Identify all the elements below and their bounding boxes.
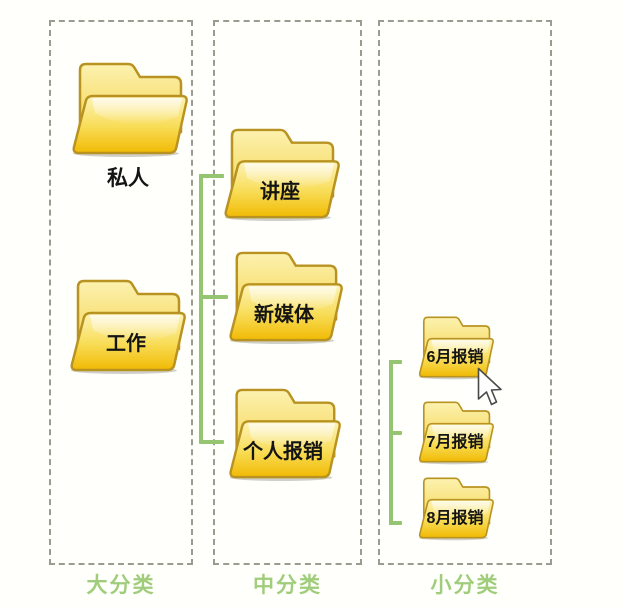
folder-private[interactable]	[68, 62, 188, 158]
connector-bracket-middle	[199, 174, 203, 444]
open-folder-icon	[66, 279, 186, 375]
connector-tick-july	[389, 431, 402, 435]
connector-bracket-small	[389, 360, 393, 525]
folder-august-reimbursement[interactable]: 8月报销	[416, 477, 494, 541]
category-label-large: 大分类	[49, 569, 193, 599]
folder-work[interactable]: 工作	[66, 279, 186, 375]
category-label-small: 小分类	[378, 569, 552, 599]
folder-personal-reimbursement[interactable]: 个人报销	[225, 388, 341, 482]
connector-tick-newmedia	[199, 295, 228, 299]
open-folder-icon	[225, 388, 341, 482]
folder-lecture[interactable]: 讲座	[220, 128, 340, 222]
category-label-medium: 中分类	[213, 569, 362, 599]
open-folder-icon	[416, 477, 494, 541]
open-folder-icon	[416, 401, 494, 465]
folder-new-media[interactable]: 新媒体	[225, 251, 343, 345]
open-folder-icon	[225, 251, 343, 345]
folder-july-reimbursement[interactable]: 7月报销	[416, 401, 494, 465]
connector-tick-august	[389, 521, 402, 525]
open-folder-icon	[220, 128, 340, 222]
connector-tick-personal	[199, 440, 224, 444]
open-folder-icon	[68, 62, 188, 158]
folder-structure-diagram: 私人 工作 讲座 新媒体 个人报销 6月报销 7月报销 8月报销 大分类 中分类…	[0, 0, 624, 609]
connector-tick-june	[389, 360, 402, 364]
mouse-cursor-icon	[477, 367, 503, 407]
folder-label-private: 私人	[68, 162, 188, 192]
